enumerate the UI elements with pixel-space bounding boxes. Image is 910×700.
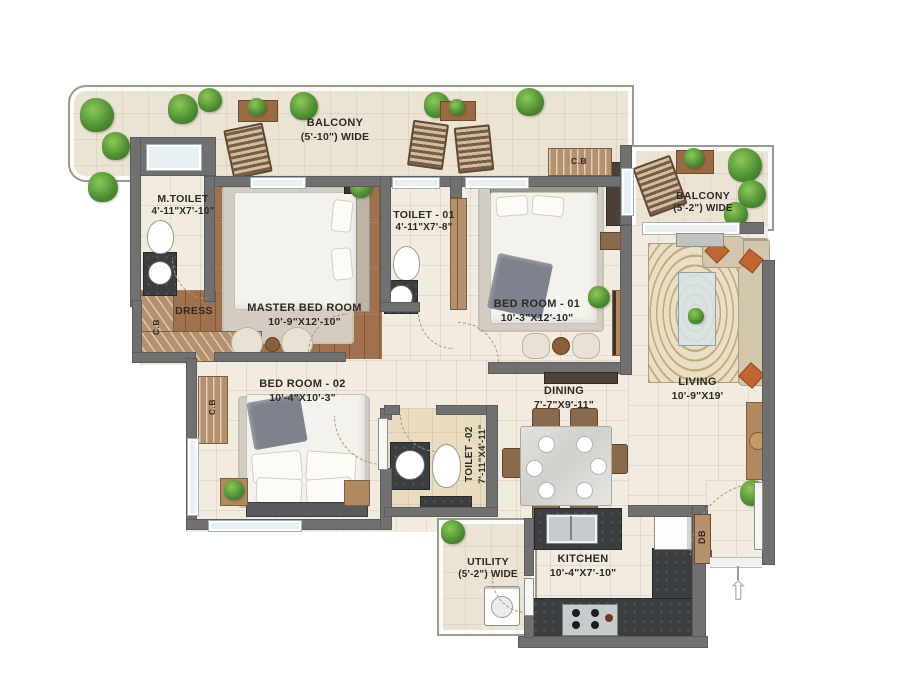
balcony-top-plant-6 — [290, 92, 318, 120]
master-window — [250, 177, 306, 189]
wall-hall-bedroom02-lower — [380, 468, 392, 530]
kitchen-hob-knob — [605, 614, 613, 622]
entry-door-leaf — [754, 482, 763, 550]
wall-balcony-living-stub — [738, 222, 764, 234]
label-kitchen-dim: 10'-4"X7'-10" — [518, 567, 648, 580]
wall-left-upper — [130, 137, 141, 307]
label-balcony-right-dim: (5'-2") WIDE — [638, 203, 768, 216]
living-balcony-console — [676, 233, 724, 247]
balcony-top-planter2-plant — [449, 99, 465, 115]
bedroom02-nightstand-plant — [224, 480, 244, 500]
label-master-bedroom: MASTER BED ROOM 10'-9"X12'-10" — [222, 302, 387, 329]
mtoilet-basin — [148, 261, 172, 285]
bedroom02-door-leaf — [378, 418, 388, 470]
label-dress-name: DRESS — [158, 305, 230, 318]
label-toilet01-name: TOILET - 01 — [372, 209, 476, 222]
label-kitchen-name: KITCHEN — [518, 553, 648, 567]
balcony-top-plant-8 — [516, 88, 544, 116]
toilet01-wc — [393, 246, 420, 281]
dining-plate-6 — [576, 482, 593, 499]
kitchen-burner-4 — [591, 621, 599, 629]
wall-master-bottom — [214, 352, 346, 362]
master-side-table — [265, 337, 280, 352]
dining-plate-3 — [526, 460, 543, 477]
bedroom01-right-window — [621, 168, 634, 216]
label-balcony-right-name: BALCONY — [638, 190, 768, 203]
label-dining: DINING 7'-7"X9'-11" — [498, 385, 630, 412]
utility-plant — [441, 520, 465, 544]
master-pillow-2 — [331, 247, 354, 281]
label-toilet01: TOILET - 01 4'-11"X7'-8" — [372, 209, 476, 235]
balcony-right-planter-plant — [684, 148, 704, 168]
label-m-toilet-dim: 4'-11"X7'-10" — [120, 206, 246, 219]
label-bedroom02: BED ROOM - 02 10'-4"X10'-3" — [225, 378, 380, 405]
cupboard-bedroom02-label: C.B — [207, 393, 217, 421]
label-m-toilet: M.TOILET 4'-11"X7'-10" — [120, 193, 246, 219]
bedroom01-round-table — [552, 337, 570, 355]
mtoilet-wc — [147, 220, 174, 254]
wall-toilet01-bedroom01 — [450, 176, 462, 198]
bedroom01-chair-1 — [522, 333, 550, 359]
label-bedroom01-dim: 10'-3"X12'-10" — [462, 312, 612, 325]
dining-plate-4 — [590, 458, 607, 475]
label-master-bedroom-dim: 10'-9"X12'-10" — [222, 316, 387, 329]
bedroom02-pillow-3 — [255, 477, 302, 505]
label-bedroom02-dim: 10'-4"X10'-3" — [225, 392, 380, 405]
floor-plan: C.B C.B C.B — [0, 0, 910, 700]
kitchen-burner-3 — [591, 609, 599, 617]
label-dining-dim: 7'-7"X9'-11" — [498, 399, 630, 412]
label-toilet02-dim: 7'-11"X4'-11" — [476, 406, 488, 502]
kitchen-burner-1 — [572, 609, 580, 617]
label-toilet02: TOILET -02 7'-11"X4'-11" — [464, 406, 488, 502]
toilet02-basin — [395, 450, 425, 480]
wall-kitchen-bottom — [518, 636, 708, 648]
kitchen-fridge — [654, 514, 692, 550]
living-coffee-table-plant — [688, 308, 704, 324]
utility-door-leaf — [524, 578, 534, 616]
label-bedroom01: BED ROOM - 01 10'-3"X12'-10" — [462, 298, 612, 325]
label-dining-name: DINING — [498, 385, 630, 399]
dining-plate-1 — [538, 436, 555, 453]
master-headboard — [356, 192, 370, 312]
label-toilet02-name: TOILET -02 — [464, 406, 477, 502]
label-bedroom01-name: BED ROOM - 01 — [462, 298, 612, 312]
label-dress: DRESS — [158, 305, 230, 318]
wall-right-outer — [762, 260, 775, 565]
label-balcony-top-name: BALCONY — [250, 117, 420, 131]
balcony-right-plant-1 — [728, 148, 762, 182]
balcony-top-planter1-plant — [248, 98, 266, 116]
db-label: DB — [697, 523, 707, 551]
bedroom01-pillow-1 — [495, 195, 528, 217]
toilet01-window — [392, 177, 440, 189]
bedroom02-nightstand-right — [344, 480, 370, 506]
entry-threshold — [710, 557, 762, 568]
master-pillow-1 — [330, 199, 353, 233]
console-dining-wall — [544, 372, 618, 384]
kitchen-sink-divider — [570, 516, 572, 540]
bedroom02-window-left — [187, 438, 199, 516]
wall-left-dress — [132, 300, 142, 360]
entry-arrow-icon: ⇧ — [727, 576, 750, 607]
bedroom01-balcony-door — [465, 177, 529, 189]
balcony-top-plant-4 — [168, 94, 198, 124]
mtoilet-window — [146, 144, 202, 171]
wall-utility-kitchen-lower — [524, 614, 534, 638]
bedroom01-pillow-2 — [531, 195, 565, 218]
cupboard-bedroom01-label: C.B — [565, 156, 593, 166]
label-toilet01-dim: 4'-11"X7'-8" — [372, 222, 476, 235]
label-living-name: LIVING — [630, 376, 765, 390]
dining-plate-2 — [576, 436, 593, 453]
bedroom02-window-bottom — [208, 520, 302, 532]
balcony-top-plant-3 — [88, 172, 118, 202]
wall-toilet02-bottom — [384, 507, 498, 517]
label-balcony-top-dim: (5'-10") WIDE — [250, 131, 420, 144]
wall-dining-living — [620, 225, 632, 375]
label-balcony-right: BALCONY (5'-2") WIDE — [638, 190, 768, 216]
dining-plate-5 — [538, 482, 555, 499]
balcony-top-plant-5 — [198, 88, 222, 112]
dining-chair-left — [502, 448, 522, 478]
balcony-top-deck-chair-3 — [454, 124, 495, 174]
label-master-bedroom-name: MASTER BED ROOM — [222, 302, 387, 316]
bedroom01-nightstand — [600, 232, 622, 250]
label-kitchen: KITCHEN 10'-4"X7'-10" — [518, 553, 648, 580]
label-living-dim: 10'-9"X19' — [630, 390, 765, 403]
wall-toilet02-top-left — [384, 405, 400, 415]
balcony-top-plant-1 — [80, 98, 114, 132]
label-m-toilet-name: M.TOILET — [120, 193, 246, 206]
label-living: LIVING 10'-9"X19' — [630, 376, 765, 403]
kitchen-burner-2 — [572, 621, 580, 629]
wall-master-toilet01 — [380, 176, 391, 312]
label-balcony-top: BALCONY (5'-10") WIDE — [250, 117, 420, 144]
balcony-top-plant-2 — [102, 132, 130, 160]
label-bedroom02-name: BED ROOM - 02 — [225, 378, 380, 392]
bedroom01-chair-2 — [572, 333, 600, 359]
kitchen-sink — [546, 514, 598, 544]
